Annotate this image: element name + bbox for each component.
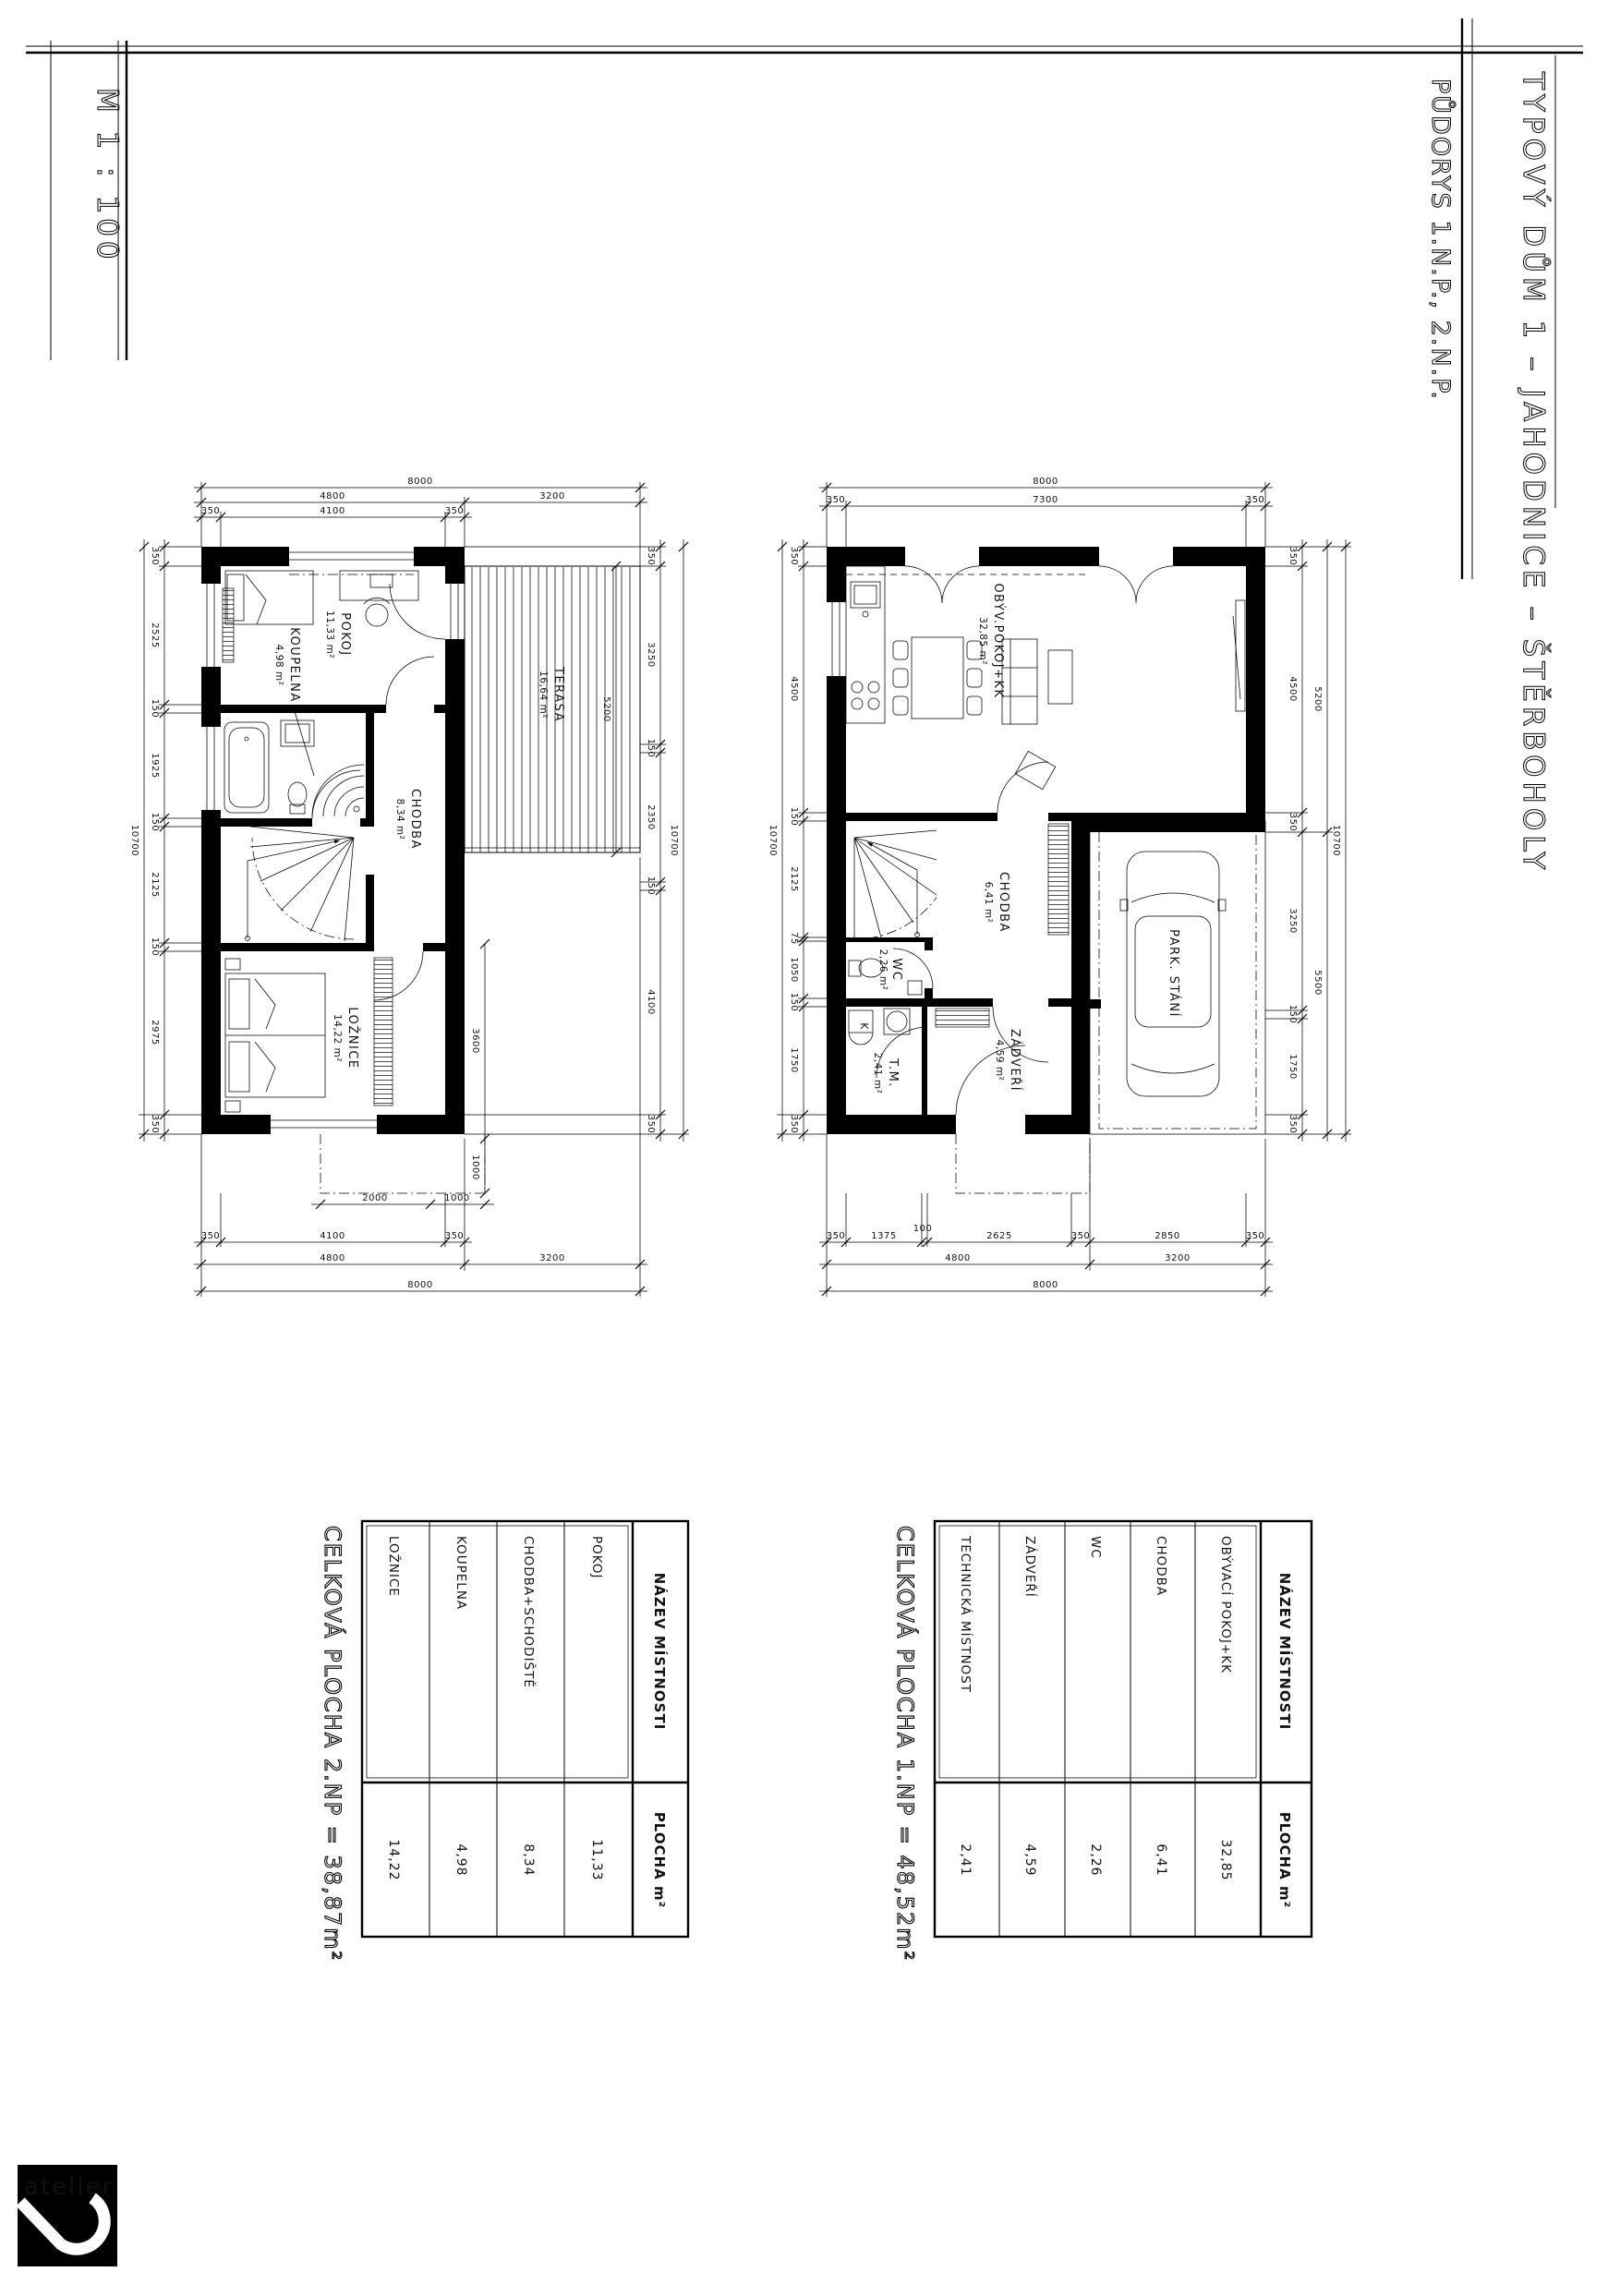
- windows-1np: [832, 574, 1085, 676]
- svg-text:2850: 2850: [1155, 1231, 1179, 1241]
- table-2np-row-area: 8,34: [521, 1843, 536, 1876]
- svg-text:4800: 4800: [945, 1253, 970, 1263]
- svg-text:4100: 4100: [646, 989, 656, 1014]
- table-2np: NÁZEV MÍSTNOSTI PLOCHA m² POKOJ CHODBA+S…: [362, 1521, 688, 1937]
- svg-text:350: 350: [827, 1231, 846, 1241]
- svg-text:4500: 4500: [1288, 676, 1298, 701]
- svg-text:350: 350: [827, 495, 846, 505]
- room-area-obyv: 32,85 m²: [977, 617, 988, 665]
- svg-text:1050: 1050: [789, 957, 799, 982]
- svg-text:10700: 10700: [129, 825, 139, 856]
- sofa: [1002, 639, 1037, 724]
- room-label-pokoj: POKOJ: [338, 612, 352, 656]
- desk-chair: [364, 598, 390, 626]
- svg-text:150: 150: [1288, 1005, 1298, 1024]
- wardrobe-chodba: [1048, 824, 1069, 935]
- room-area-koupelna: 4,98 m²: [273, 645, 284, 686]
- washbasin-wc: [908, 981, 922, 995]
- balcony-outline: [320, 1134, 485, 1193]
- stairs-1np: [854, 828, 958, 941]
- svg-text:4500: 4500: [789, 676, 799, 701]
- room-label-parking: PARK. STÁNÍ: [1167, 929, 1181, 1018]
- dims-2np-left: 350 2525 150 1925 150 2125 150 2975 350 …: [129, 539, 201, 1142]
- dims-2np-bottom: 2000 1000 350 4100 350 4800 3200 8000: [194, 857, 647, 1297]
- label-k: K: [858, 1022, 869, 1030]
- table-1np-row-area: 4,59: [1022, 1843, 1037, 1876]
- svg-text:8000: 8000: [407, 1280, 432, 1290]
- svg-text:350: 350: [1288, 547, 1298, 566]
- coffee-table: [1048, 650, 1072, 704]
- svg-text:5200: 5200: [601, 696, 611, 721]
- svg-text:3200: 3200: [539, 491, 564, 501]
- svg-text:150: 150: [789, 993, 799, 1012]
- svg-text:1925: 1925: [150, 753, 160, 778]
- table-2np-row-name: POKOJ: [589, 1536, 604, 1579]
- radiator-pokoj: [223, 588, 234, 662]
- svg-text:8000: 8000: [1033, 1280, 1058, 1290]
- entry-canopy: [956, 1134, 1090, 1193]
- walls-1np: [827, 547, 1265, 1134]
- bathtub: [224, 722, 269, 813]
- kitchen-counter: [846, 566, 885, 723]
- table-2np-row-name: CHODBA+SCHODIŠTĚ: [521, 1536, 538, 1688]
- dims-1np-top: 8000 350 7300 350: [819, 477, 1273, 547]
- svg-text:150: 150: [150, 813, 160, 832]
- bed-single-pokoj: [225, 571, 313, 624]
- table-1np-header-name: NÁZEV MÍSTNOSTI: [1276, 1573, 1294, 1731]
- table-1np-row-area: 2,26: [1088, 1843, 1103, 1876]
- koupelna-leader: [294, 708, 314, 776]
- table-2np-row-area: 4,98: [453, 1843, 468, 1876]
- table-1np-row-name: TECHNICKÁ MÍSTNOST: [958, 1535, 973, 1693]
- svg-text:5200: 5200: [1312, 686, 1323, 711]
- room-label-terasa: TERASA: [551, 666, 565, 722]
- table-1np-row-name: WC: [1088, 1536, 1103, 1559]
- svg-text:350: 350: [445, 506, 465, 516]
- svg-text:2625: 2625: [986, 1231, 1011, 1241]
- room-area-terasa: 16,64 m²: [538, 671, 549, 719]
- svg-text:1375: 1375: [871, 1231, 896, 1241]
- dims-1np-right: 350 4500 350 3250 150 1750 350 5200 5500…: [1265, 539, 1351, 1142]
- svg-text:350: 350: [1288, 813, 1298, 832]
- room-label-obyv: OBÝV.POKOJ+KK: [991, 583, 1006, 698]
- svg-text:100: 100: [913, 1224, 933, 1234]
- svg-text:10700: 10700: [1331, 825, 1341, 856]
- sheet-scale: M 1 : 100: [91, 88, 124, 264]
- svg-text:350: 350: [1071, 1231, 1091, 1241]
- total-area-2np: CELKOVÁ PLOCHA 2.NP = 38,87m²: [320, 1526, 346, 1962]
- svg-text:350: 350: [646, 1115, 656, 1134]
- wardrobe-loznice: [374, 958, 393, 1106]
- washbasin-2np: [281, 720, 314, 746]
- table-1np-row-area: 32,85: [1218, 1839, 1233, 1880]
- logo-text: atelier: [24, 2173, 114, 2201]
- svg-text:1750: 1750: [1288, 1054, 1298, 1079]
- room-label-tm: T.M.: [886, 1057, 900, 1088]
- table-2np-row-area: 14,22: [386, 1839, 401, 1880]
- svg-text:75: 75: [789, 932, 799, 945]
- washer: [884, 1009, 910, 1034]
- svg-text:150: 150: [150, 699, 160, 719]
- table-2np-row-name: KOUPELNA: [453, 1536, 468, 1610]
- svg-text:2125: 2125: [789, 866, 799, 891]
- svg-text:2000: 2000: [362, 1193, 387, 1203]
- drawing-sheet: M 1 : 100 TYPOVÝ DŮM 1 – JAHODNICE – ŠTĚ…: [0, 0, 1620, 2291]
- stairs-arrow-1np: [867, 842, 920, 937]
- svg-text:150: 150: [789, 807, 799, 827]
- total-area-1np: CELKOVÁ PLOCHA 1.NP = 48,52m²: [892, 1526, 919, 1962]
- room-area-tm: 2,41 m²: [872, 1053, 883, 1094]
- svg-text:8000: 8000: [1033, 477, 1058, 487]
- room-label-wc: WC: [889, 959, 903, 982]
- table-2np-header-area: PLOCHA m²: [651, 1812, 668, 1908]
- plan-2np: POKOJ 11,33 m² KOUPELNA 4,98 m² TERASA 1…: [129, 477, 689, 1297]
- svg-text:8000: 8000: [407, 477, 432, 487]
- svg-text:350: 350: [646, 547, 656, 566]
- svg-text:3200: 3200: [539, 1253, 564, 1263]
- svg-text:2125: 2125: [150, 872, 160, 897]
- svg-text:2525: 2525: [150, 622, 160, 647]
- svg-text:350: 350: [150, 1115, 160, 1134]
- table-2np-row-area: 11,33: [589, 1839, 604, 1880]
- svg-text:3200: 3200: [1165, 1253, 1190, 1263]
- doormat: [936, 1009, 989, 1027]
- dims-1np-left: 350 4500 150 2125 75 1050 150 1750 350 1…: [768, 539, 827, 1142]
- plan-1np: OBÝV.POKOJ+KK 32,85 m² CHODBA 6,41 m² WC…: [768, 477, 1351, 1297]
- table-2np-row-name: LOŽNICE: [386, 1536, 403, 1597]
- svg-text:150: 150: [646, 876, 656, 896]
- room-area-pokoj: 11,33 m²: [324, 610, 335, 659]
- shower: [312, 765, 364, 816]
- room-area-wc: 2,26 m²: [877, 949, 889, 991]
- room-area-loznice: 14,22 m²: [332, 1014, 343, 1062]
- svg-text:4800: 4800: [320, 491, 345, 501]
- svg-text:1000: 1000: [444, 1193, 469, 1203]
- sheet-frame: [26, 18, 1583, 579]
- drawing-title: PŮDORYS 1.N.P., 2.N.P.: [1426, 79, 1456, 401]
- room-label-chodba-2np: CHODBA: [408, 789, 422, 850]
- svg-text:1000: 1000: [470, 1154, 480, 1179]
- room-label-zadveri: ZÁDVEŘÍ: [1008, 1029, 1022, 1092]
- svg-text:350: 350: [201, 1231, 221, 1241]
- room-area-zadveri: 4,59 m²: [994, 1040, 1005, 1082]
- room-area-chodba-2np: 8,34 m²: [394, 799, 405, 840]
- table-1np-row-area: 2,41: [958, 1843, 973, 1876]
- project-title: TYPOVÝ DŮM 1 – JAHODNICE – ŠTĚRBOHOLY: [1517, 71, 1551, 874]
- room-label-loznice: LOŽNICE: [345, 1007, 360, 1069]
- tv-bench: [1233, 600, 1245, 711]
- desk: [340, 571, 418, 600]
- table-1np-row-name: CHODBA: [1154, 1536, 1168, 1596]
- dining-table: [893, 637, 982, 719]
- svg-text:3600: 3600: [470, 1028, 480, 1053]
- room-label-koupelna: KOUPELNA: [287, 627, 301, 702]
- svg-text:4100: 4100: [320, 506, 345, 516]
- svg-text:150: 150: [150, 937, 160, 957]
- svg-text:350: 350: [201, 506, 221, 516]
- doors-1np: [876, 566, 1173, 1115]
- svg-text:150: 150: [646, 739, 656, 758]
- table-1np-row-name: ZÁDVEŘÍ: [1022, 1536, 1038, 1598]
- bed-double: [225, 959, 325, 1112]
- svg-text:350: 350: [1246, 495, 1265, 505]
- room-area-chodba-1np: 6,41 m²: [983, 882, 994, 924]
- svg-text:350: 350: [789, 547, 799, 566]
- svg-text:4800: 4800: [320, 1253, 345, 1263]
- stairs-arrow-2np: [246, 840, 341, 941]
- floorplan-drawing: M 1 : 100 TYPOVÝ DŮM 1 – JAHODNICE – ŠTĚ…: [0, 0, 1620, 2291]
- dims-1np-bottom: 350 1375 100 2625 350 2850 350 4800 3200…: [819, 1134, 1273, 1297]
- monitor: [370, 574, 393, 587]
- table-1np-row-name: OBÝVACÍ POKOJ+KK: [1218, 1536, 1234, 1674]
- svg-text:3250: 3250: [646, 642, 656, 667]
- table-1np-row-area: 6,41: [1154, 1843, 1168, 1876]
- svg-text:350: 350: [789, 1115, 799, 1134]
- toilet-2np: [288, 782, 307, 814]
- svg-text:7300: 7300: [1033, 495, 1058, 505]
- svg-text:10700: 10700: [768, 825, 778, 856]
- svg-text:350: 350: [1246, 1231, 1265, 1241]
- svg-text:2350: 2350: [646, 804, 656, 829]
- atelier-logo: atelier: [18, 2165, 117, 2266]
- armchair: [1015, 751, 1055, 789]
- stairs-2np: [250, 827, 354, 941]
- svg-text:3250: 3250: [1288, 908, 1298, 933]
- svg-text:5500: 5500: [1312, 970, 1323, 995]
- svg-text:350: 350: [445, 1231, 465, 1241]
- svg-text:350: 350: [1288, 1115, 1298, 1134]
- svg-text:4100: 4100: [320, 1231, 345, 1241]
- table-1np-header-area: PLOCHA m²: [1276, 1812, 1293, 1908]
- room-label-chodba-1np: CHODBA: [997, 872, 1010, 933]
- svg-text:2975: 2975: [150, 1020, 160, 1045]
- dims-2np-right: 5200 350 3250 150 2350 150 4100 350 1070…: [465, 539, 689, 1198]
- table-1np: NÁZEV MÍSTNOSTI PLOCHA m² OBÝVACÍ POKOJ+…: [935, 1521, 1312, 1937]
- svg-text:10700: 10700: [669, 825, 679, 856]
- svg-text:1750: 1750: [789, 1047, 799, 1072]
- table-2np-header-name: NÁZEV MÍSTNOSTI: [651, 1573, 669, 1731]
- svg-text:350: 350: [150, 547, 160, 566]
